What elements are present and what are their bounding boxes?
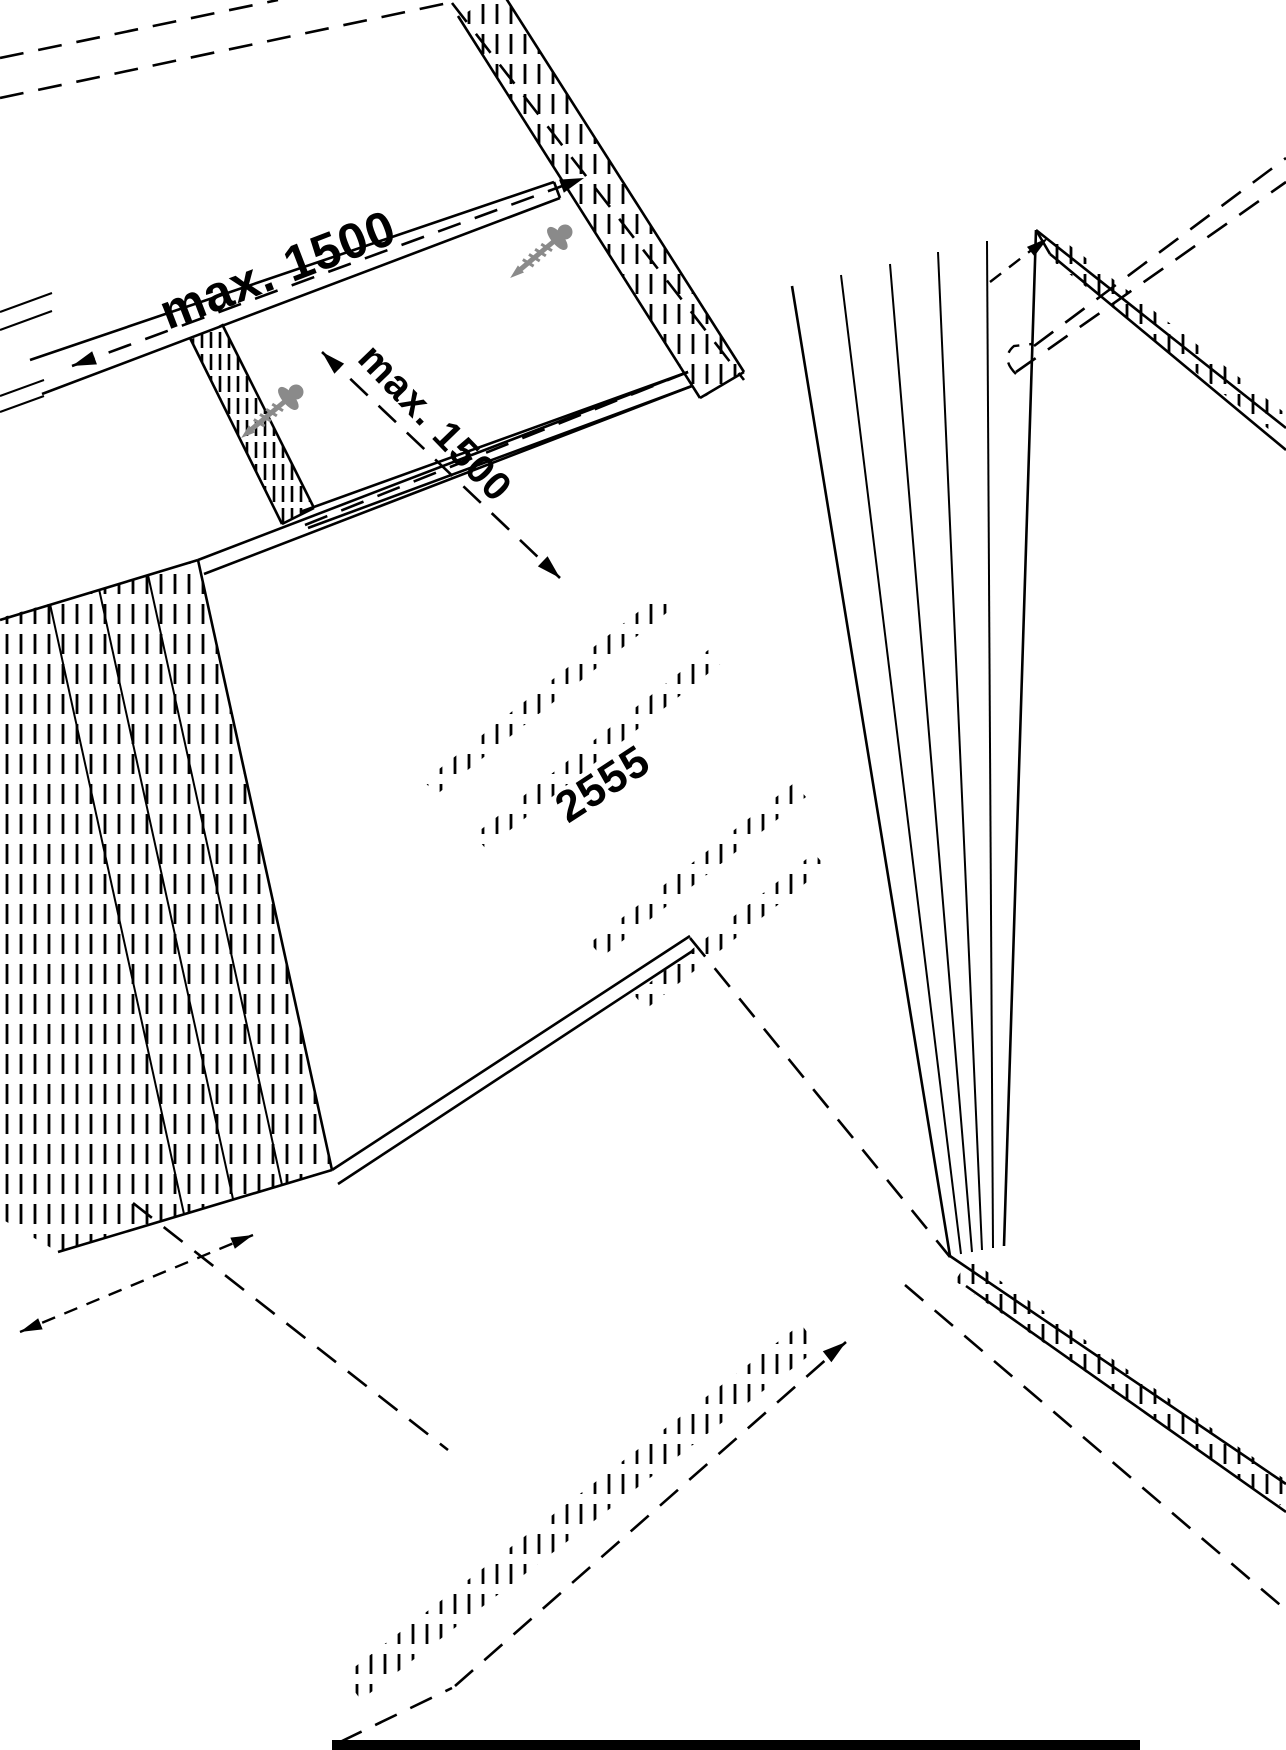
dimension-label-max-1500-top: max. 1500 [152,199,404,340]
hatched-lower-edge [343,1324,819,1700]
arrow-icon [70,351,97,372]
hatched-panel-top-edge [1045,237,1285,431]
technical-drawing-page: max. 1500 max. 1500 2555 [0,0,1286,1750]
dimension-line-mid [322,352,560,578]
hatched-panel-end [0,540,360,1280]
bottom-panel-outline [332,1324,1140,1745]
support-rails [0,0,744,528]
arrow-icon [18,1318,43,1337]
left-panel [0,372,826,1280]
arrow-icon [823,1336,851,1362]
laying-direction-line [455,1342,846,1686]
hatched-edge-strip [474,647,724,849]
panel-installation-diagram: max. 1500 max. 1500 2555 [0,0,1286,1750]
arrow-icon [317,347,344,374]
arrow-icon [230,1229,255,1248]
right-panel [792,230,1286,1512]
screw-icon [504,218,578,286]
hatched-rail-section [190,324,314,524]
arrow-icon [538,556,565,583]
hatched-edge-strip [590,783,806,957]
